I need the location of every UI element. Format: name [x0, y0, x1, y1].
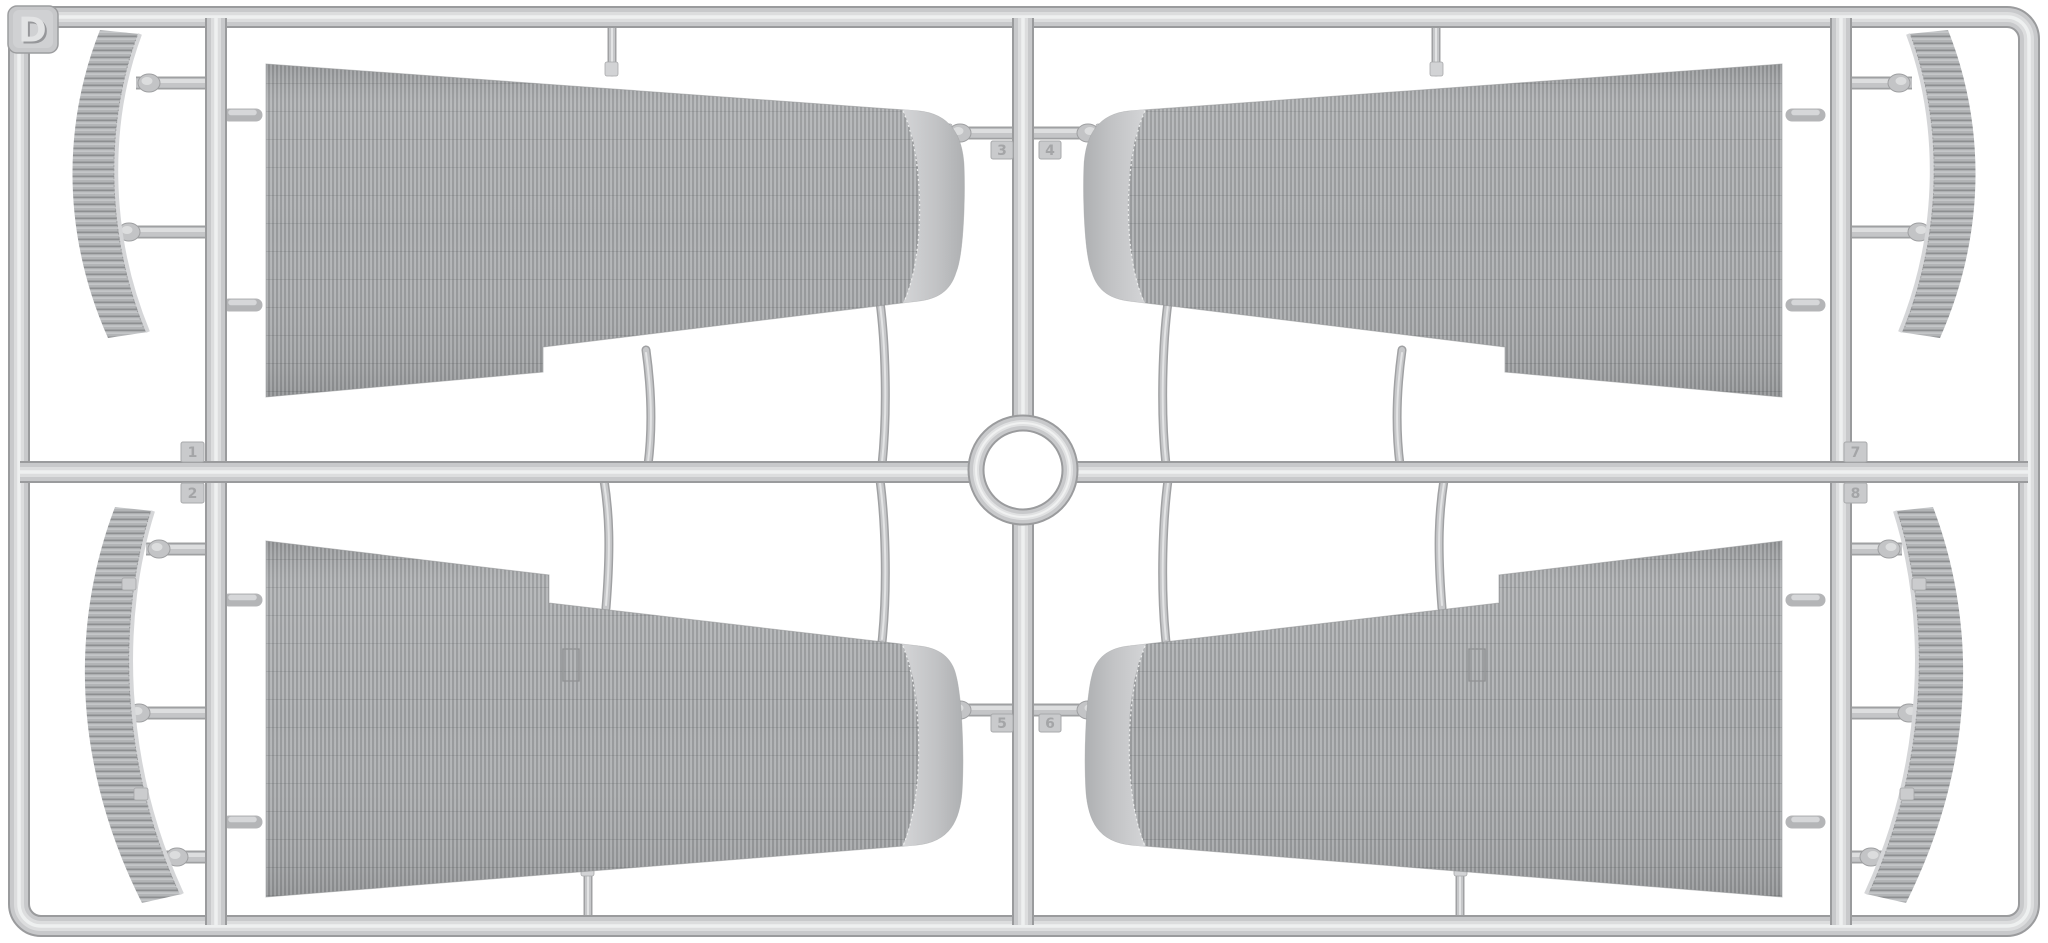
- svg-text:6: 6: [1045, 716, 1055, 732]
- svg-text:2: 2: [188, 486, 198, 502]
- sprue-letter-plate: D D: [8, 6, 58, 53]
- part-number-tab-1: 1: [181, 442, 204, 462]
- center-ring: [976, 423, 1070, 517]
- part-number-tab-5: 5: [991, 714, 1013, 732]
- part-number-tab-4: 4: [1039, 141, 1061, 159]
- svg-text:5: 5: [997, 716, 1007, 732]
- part-number-tab-8: 8: [1844, 483, 1867, 503]
- part-number-tab-3: 3: [991, 141, 1013, 159]
- sprue-photo: 1 2 3 4 5 6 7 8 D D: [0, 0, 2048, 943]
- part-number-tab-2: 2: [181, 483, 204, 503]
- svg-text:8: 8: [1851, 486, 1861, 502]
- svg-text:3: 3: [997, 143, 1007, 159]
- svg-text:7: 7: [1851, 445, 1861, 461]
- svg-text:D: D: [18, 11, 46, 51]
- part-number-tab-6: 6: [1039, 714, 1061, 732]
- part-number-tab-7: 7: [1844, 442, 1867, 462]
- svg-text:1: 1: [188, 445, 198, 461]
- svg-text:4: 4: [1045, 143, 1055, 159]
